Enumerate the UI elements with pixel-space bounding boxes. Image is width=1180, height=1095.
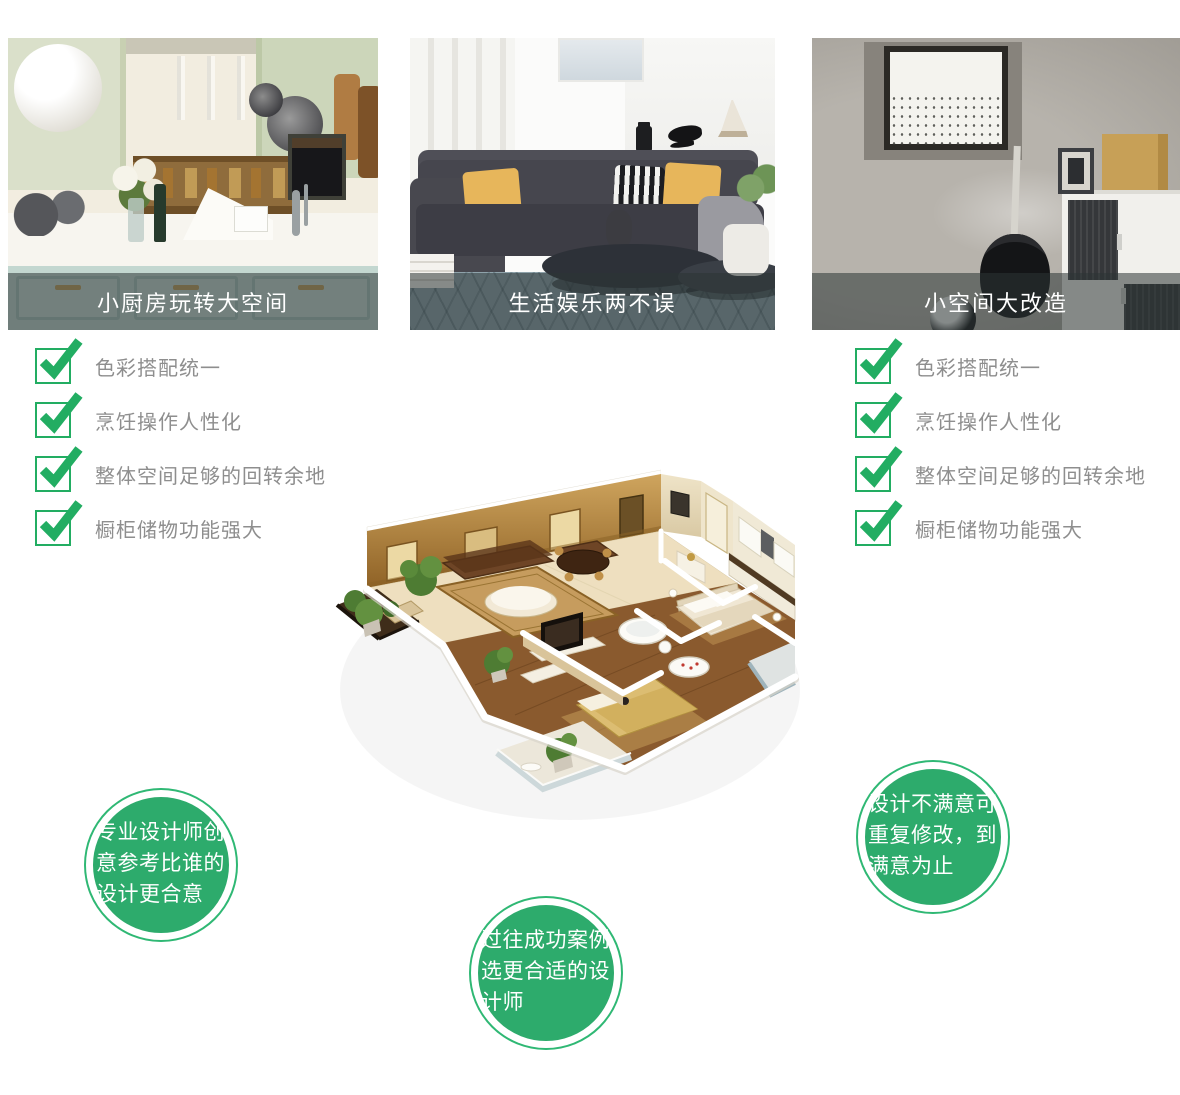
benefit-badge-revisions: 设计不满意可重复修改，到满意为止 — [858, 762, 1008, 912]
card-caption-text: 生活娱乐两不误 — [508, 286, 676, 318]
checklist-item: 橱柜储物功能强大 — [35, 510, 365, 546]
checklist-item-label: 橱柜储物功能强大 — [95, 514, 263, 543]
feature-card-small-room: 小空间大改造 — [812, 38, 1180, 330]
benefit-badge-designers: 专业设计师创意参考比谁的设计更合意 — [86, 790, 236, 940]
checkbox-checked-icon — [35, 510, 71, 546]
lantern-decor — [636, 126, 652, 152]
checkbox-checked-icon — [855, 510, 891, 546]
card-caption: 小厨房玩转大空间 — [8, 273, 378, 330]
checklist-item: 色彩搭配统一 — [855, 348, 1180, 384]
page: 小厨房玩转大空间 生活娱乐两不误 — [0, 0, 1180, 1095]
checklist-item: 整体空间足够的回转余地 — [35, 456, 365, 492]
card-caption: 生活娱乐两不误 — [410, 273, 775, 330]
feature-card-kitchen: 小厨房玩转大空间 — [8, 38, 378, 330]
stove-pots — [12, 184, 92, 236]
floorplan-3d-render — [325, 465, 800, 840]
checkbox-checked-icon — [35, 348, 71, 384]
checkbox-checked-icon — [855, 456, 891, 492]
checklist-item-label: 色彩搭配统一 — [915, 352, 1041, 381]
checklist-item-label: 橱柜储物功能强大 — [915, 514, 1083, 543]
checklist-item: 橱柜储物功能强大 — [855, 510, 1180, 546]
feature-card-row: 小厨房玩转大空间 生活娱乐两不误 — [8, 38, 1180, 330]
checklist-item-label: 色彩搭配统一 — [95, 352, 221, 381]
checkbox-checked-icon — [855, 402, 891, 438]
benefit-badge-text: 设计不满意可重复修改，到满意为止 — [868, 789, 998, 886]
benefit-badge-cases: 过往成功案例选更合适的设计师 — [471, 898, 621, 1048]
checklist-item-label: 整体空间足够的回转余地 — [95, 460, 326, 489]
hanging-pan-small — [249, 83, 283, 117]
card-caption-text: 小厨房玩转大空间 — [97, 286, 289, 318]
cutting-board-dark — [358, 86, 378, 178]
card-caption: 小空间大改造 — [812, 273, 1180, 330]
checklist-item: 烹饪操作人性化 — [855, 402, 1180, 438]
checkbox-checked-icon — [35, 402, 71, 438]
cabinet-handle — [1117, 234, 1122, 250]
faucet — [292, 190, 300, 236]
benefit-badge-text: 专业设计师创意参考比谁的设计更合意 — [96, 817, 226, 914]
pendant-lamp — [14, 44, 102, 132]
counter-card — [234, 206, 268, 232]
kraft-box — [1102, 134, 1168, 190]
benefit-badge-text: 过往成功案例选更合适的设计师 — [481, 925, 611, 1022]
house-plant — [729, 158, 775, 218]
checklist-item: 烹饪操作人性化 — [35, 402, 365, 438]
checklist-right: 色彩搭配统一 烹饪操作人性化 整体空间足够的回转余地 橱柜储物功能强大 — [855, 348, 1180, 564]
photo-frame — [1058, 148, 1094, 194]
feature-card-living-room: 生活娱乐两不误 — [410, 38, 775, 330]
art-speckles — [890, 94, 1002, 146]
countertop — [8, 234, 378, 266]
checkbox-checked-icon — [855, 348, 891, 384]
checklist-item: 整体空间足够的回转余地 — [855, 456, 1180, 492]
checkbox-checked-icon — [35, 456, 71, 492]
white-stool — [723, 224, 769, 276]
wall-art — [558, 38, 644, 82]
card-caption-text: 小空间大改造 — [924, 286, 1068, 318]
checklist-item-label: 烹饪操作人性化 — [915, 406, 1062, 435]
checklist-item-label: 烹饪操作人性化 — [95, 406, 242, 435]
checklist-left: 色彩搭配统一 烹饪操作人性化 整体空间足够的回转余地 橱柜储物功能强大 — [35, 348, 365, 564]
checklist-item: 色彩搭配统一 — [35, 348, 365, 384]
cabinet-door-dark — [1068, 200, 1118, 280]
checklist-item-label: 整体空间足够的回转余地 — [915, 460, 1146, 489]
hanging-glasses — [163, 56, 253, 120]
